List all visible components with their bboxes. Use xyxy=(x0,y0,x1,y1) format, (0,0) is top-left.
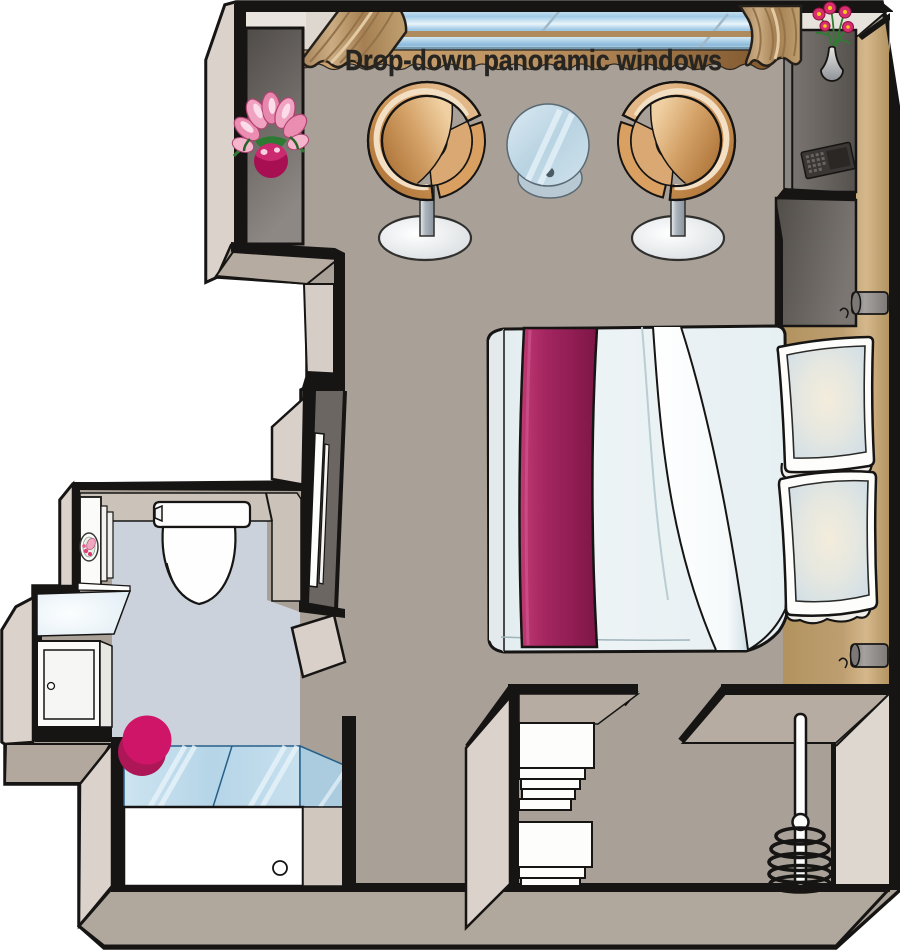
svg-text:Drop-down panoramic windows: Drop-down panoramic windows xyxy=(345,45,722,77)
